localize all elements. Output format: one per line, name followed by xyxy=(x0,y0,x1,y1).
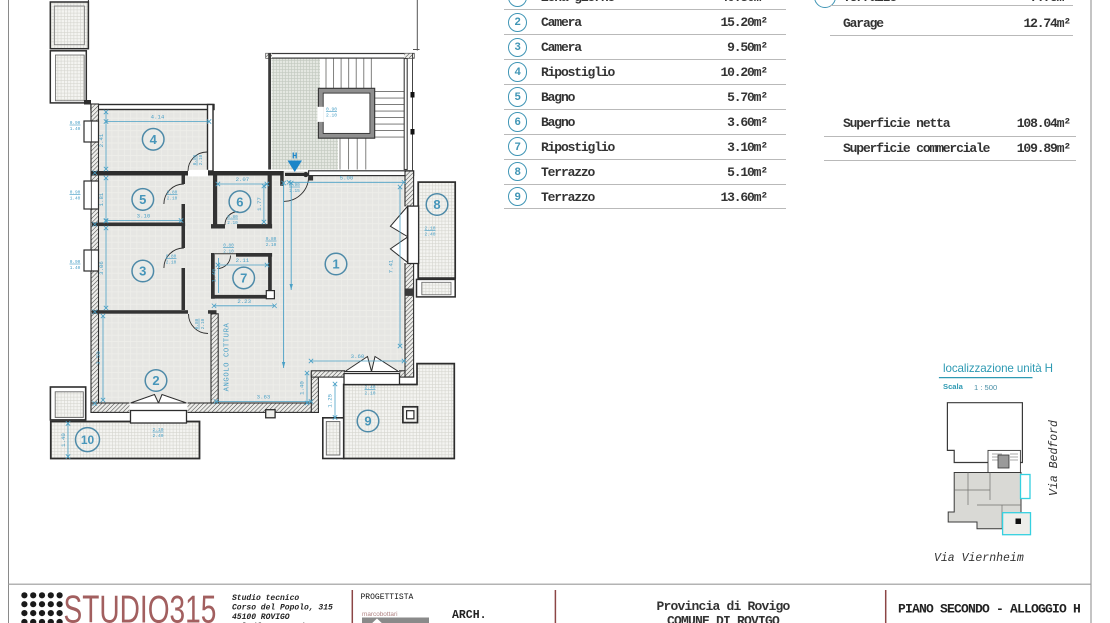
svg-text:5: 5 xyxy=(139,192,146,207)
svg-text:1.40: 1.40 xyxy=(299,381,306,395)
svg-text:ANGOLO COTTURA: ANGOLO COTTURA xyxy=(224,323,232,392)
svg-text:2.10: 2.10 xyxy=(227,221,238,226)
svg-text:Scala: Scala xyxy=(943,382,964,391)
svg-text:4.14: 4.14 xyxy=(151,114,165,121)
svg-text:Provincia di Rovigo: Provincia di Rovigo xyxy=(656,599,790,614)
svg-text:10: 10 xyxy=(81,433,95,447)
svg-text:2.10: 2.10 xyxy=(364,391,375,397)
svg-text:localizzazione unità H: localizzazione unità H xyxy=(943,362,1053,375)
svg-text:1.40: 1.40 xyxy=(70,266,81,271)
svg-text:2.07: 2.07 xyxy=(236,176,250,183)
svg-text:STUDIO315: STUDIO315 xyxy=(64,588,217,623)
svg-text:5.00: 5.00 xyxy=(340,174,354,181)
svg-text:2.10: 2.10 xyxy=(199,154,204,165)
svg-text:2.10: 2.10 xyxy=(223,250,234,255)
svg-text:PROGETTISTA: PROGETTISTA xyxy=(361,593,414,602)
svg-text:COMUNE DI ROVIGO: COMUNE DI ROVIGO xyxy=(667,614,780,623)
svg-text:1: 1 xyxy=(332,257,339,272)
svg-text:2.40: 2.40 xyxy=(152,433,163,439)
svg-text:1.40: 1.40 xyxy=(70,197,81,202)
svg-text:7: 7 xyxy=(240,271,247,286)
svg-text:2.40: 2.40 xyxy=(424,232,435,238)
svg-text:marcobottari: marcobottari xyxy=(362,611,398,618)
svg-text:1 : 500: 1 : 500 xyxy=(974,383,997,392)
svg-text:Studio tecnico: Studio tecnico xyxy=(232,594,299,603)
svg-text:3.60: 3.60 xyxy=(351,353,365,360)
svg-text:3.10: 3.10 xyxy=(137,213,151,220)
svg-text:2.10: 2.10 xyxy=(167,197,178,202)
svg-text:7.41: 7.41 xyxy=(388,259,395,273)
svg-text:Via Bedford: Via Bedford xyxy=(1048,420,1061,496)
svg-text:3.63: 3.63 xyxy=(257,394,271,401)
svg-text:6: 6 xyxy=(236,194,243,209)
svg-text:2.10: 2.10 xyxy=(326,113,337,119)
svg-text:1.77: 1.77 xyxy=(256,197,263,211)
svg-text:PIANO SECONDO - ALLOGGIO H: PIANO SECONDO - ALLOGGIO H xyxy=(898,602,1080,617)
svg-text:3: 3 xyxy=(139,264,146,279)
svg-text:Corso del Popolo, 315: Corso del Popolo, 315 xyxy=(232,604,333,613)
svg-text:45100 ROVIGO: 45100 ROVIGO xyxy=(232,613,290,622)
svg-text:2: 2 xyxy=(152,373,159,388)
svg-text:2.11: 2.11 xyxy=(236,257,250,264)
svg-text:9: 9 xyxy=(364,414,371,429)
svg-text:4: 4 xyxy=(150,132,158,147)
svg-text:H: H xyxy=(292,152,297,162)
svg-text:Via Viernheim: Via Viernheim xyxy=(934,552,1024,565)
svg-text:1.40: 1.40 xyxy=(70,127,81,132)
svg-text:2.10: 2.10 xyxy=(166,261,177,266)
svg-text:1.81: 1.81 xyxy=(98,192,105,206)
svg-text:2.23: 2.23 xyxy=(237,298,251,305)
svg-text:1.25: 1.25 xyxy=(327,393,334,407)
svg-text:ARCH.: ARCH. xyxy=(452,609,487,622)
svg-text:1.40: 1.40 xyxy=(60,433,67,447)
svg-text:2.10: 2.10 xyxy=(201,318,206,329)
svg-text:3.06: 3.06 xyxy=(98,261,105,275)
svg-text:1.46: 1.46 xyxy=(211,268,218,282)
svg-text:3.50: 3.50 xyxy=(95,351,102,365)
svg-text:2.41: 2.41 xyxy=(98,133,105,147)
svg-text:2.10: 2.10 xyxy=(266,243,277,248)
svg-text:8: 8 xyxy=(433,197,440,212)
